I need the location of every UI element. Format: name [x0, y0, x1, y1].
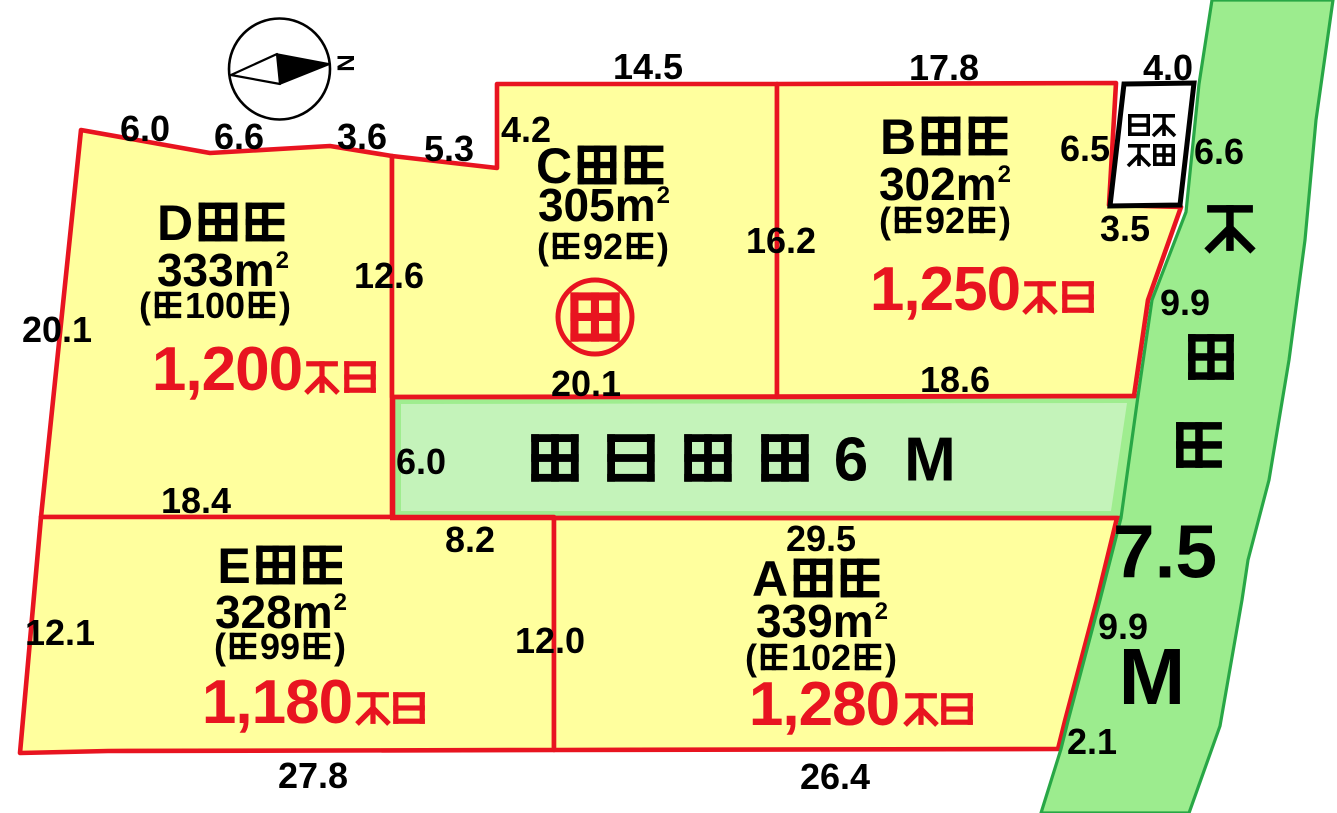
- svg-text:2: 2: [998, 161, 1011, 188]
- svg-text:9.9: 9.9: [1160, 282, 1210, 323]
- svg-text:99: 99: [260, 626, 300, 667]
- svg-text:17.8: 17.8: [909, 47, 979, 88]
- svg-text:12.0: 12.0: [515, 620, 585, 661]
- svg-text:1,180: 1,180: [202, 668, 352, 737]
- svg-text:1,200: 1,200: [152, 335, 302, 404]
- svg-text:5.3: 5.3: [424, 128, 474, 169]
- svg-text:92: 92: [925, 200, 965, 241]
- svg-text:2: 2: [276, 247, 289, 274]
- svg-text:8.2: 8.2: [445, 519, 495, 560]
- svg-text:20.1: 20.1: [22, 309, 92, 350]
- svg-text:27.8: 27.8: [278, 755, 348, 796]
- svg-text:3.6: 3.6: [337, 116, 387, 157]
- svg-text:1,280: 1,280: [749, 670, 899, 739]
- svg-text:14.5: 14.5: [613, 46, 683, 87]
- svg-text:1,250: 1,250: [870, 255, 1020, 324]
- svg-text:2.1: 2.1: [1067, 721, 1117, 762]
- svg-text:6: 6: [834, 426, 868, 495]
- svg-text:6.5: 6.5: [1060, 128, 1110, 169]
- svg-text:(: (: [214, 626, 226, 667]
- svg-text:26.4: 26.4: [800, 756, 870, 797]
- svg-text:18.4: 18.4: [161, 480, 231, 521]
- svg-text:B: B: [880, 109, 916, 165]
- svg-text:M: M: [904, 426, 956, 495]
- svg-text:6.0: 6.0: [120, 108, 170, 149]
- svg-text:M: M: [1119, 632, 1186, 721]
- svg-text:7.5: 7.5: [1113, 509, 1217, 593]
- svg-text:18.6: 18.6: [920, 359, 990, 400]
- svg-text:20.1: 20.1: [551, 363, 621, 404]
- svg-text:6.6: 6.6: [1194, 131, 1244, 172]
- svg-text:92: 92: [583, 226, 623, 267]
- svg-text:3.5: 3.5: [1100, 208, 1150, 249]
- svg-text:): ): [334, 626, 346, 667]
- svg-text:6.6: 6.6: [214, 116, 264, 157]
- svg-text:(: (: [139, 285, 151, 326]
- svg-text:): ): [657, 226, 669, 267]
- svg-text:4.0: 4.0: [1143, 47, 1193, 88]
- svg-text:12.1: 12.1: [25, 612, 95, 653]
- svg-text:305m: 305m: [538, 179, 656, 231]
- svg-text:6.0: 6.0: [396, 441, 446, 482]
- svg-text:): ): [999, 200, 1011, 241]
- svg-text:(: (: [879, 200, 891, 241]
- svg-text:100: 100: [185, 285, 245, 326]
- svg-text:2: 2: [334, 589, 347, 616]
- svg-text:D: D: [157, 195, 193, 251]
- svg-text:N: N: [332, 54, 359, 71]
- svg-text:29.5: 29.5: [786, 518, 856, 559]
- svg-text:2: 2: [657, 182, 670, 209]
- svg-text:16.2: 16.2: [746, 220, 816, 261]
- svg-text:(: (: [537, 226, 549, 267]
- svg-text:2: 2: [875, 598, 888, 625]
- svg-text:): ): [279, 285, 291, 326]
- svg-text:12.6: 12.6: [354, 255, 424, 296]
